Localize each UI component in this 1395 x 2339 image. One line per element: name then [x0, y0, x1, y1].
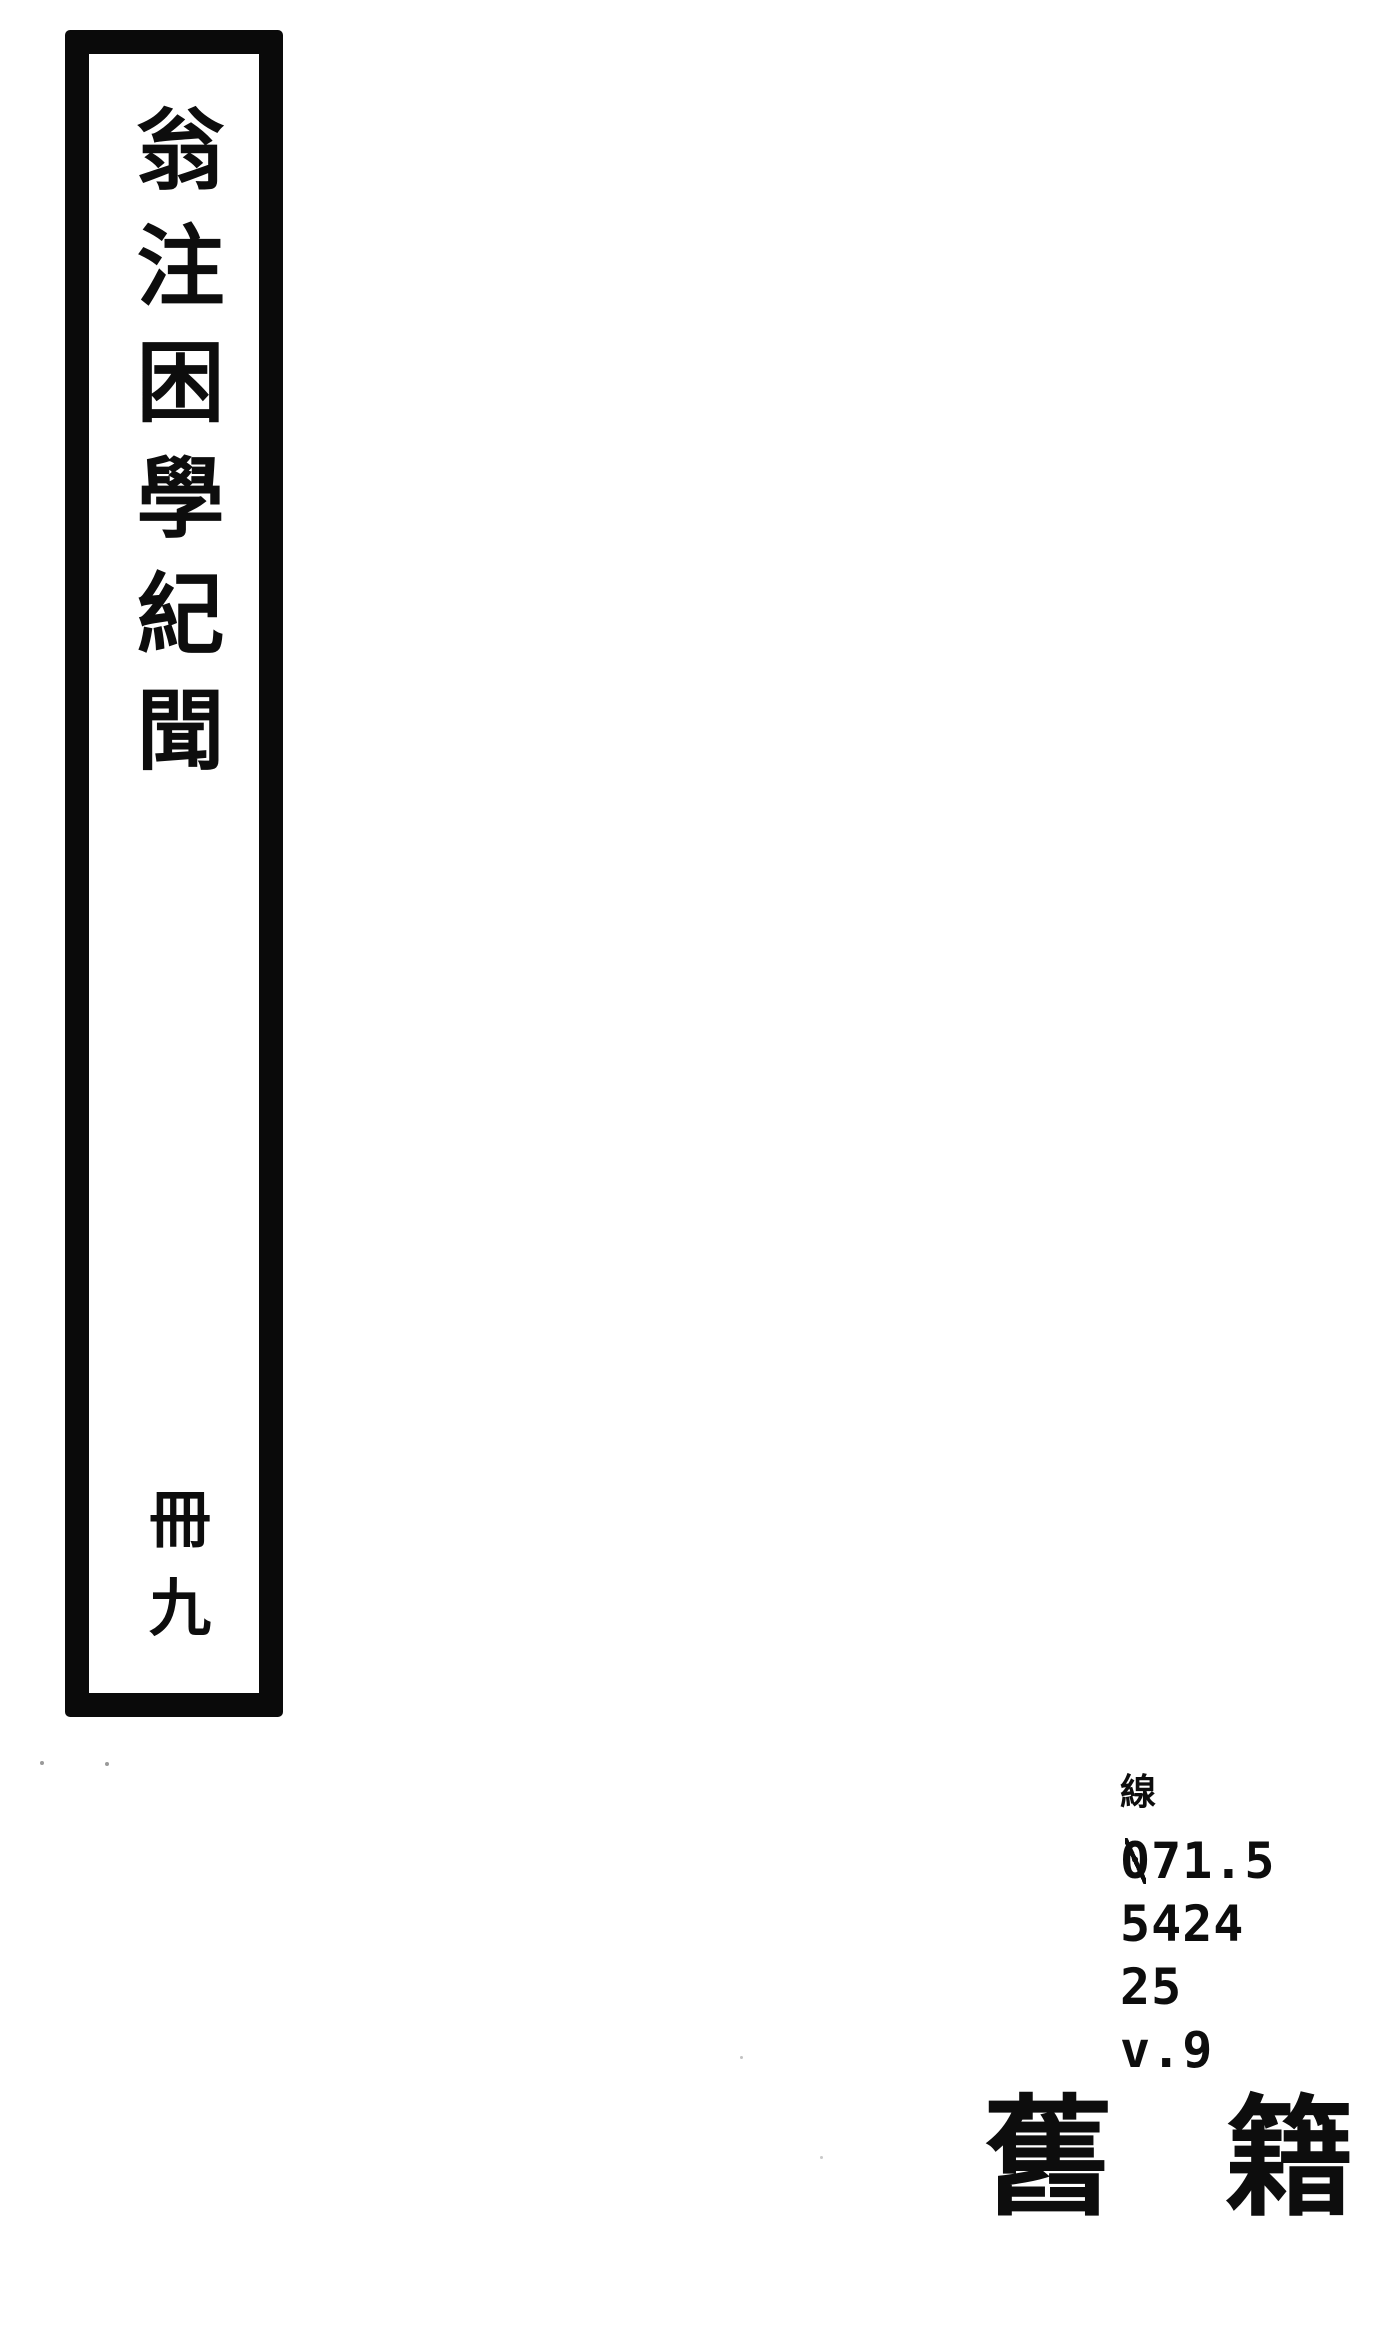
call-number-prefix: 線 [1120, 1770, 1276, 1814]
call-number-line-3: 25 [1120, 1956, 1276, 2019]
call-number-line-4: v.9 [1120, 2019, 1276, 2082]
scan-speck [105, 1762, 109, 1766]
call-number-line-1: 071.5 [1120, 1830, 1276, 1893]
volume-number-vertical: 冊九 [143, 1487, 205, 1663]
book-title-vertical: 翁注困學紀聞 [130, 104, 218, 800]
call-number-line-2: 5424 [1120, 1893, 1276, 1956]
scan-speck [740, 2056, 743, 2059]
title-slip-frame: 翁注困學紀聞 冊九 [65, 30, 283, 1717]
collection-stamp: 舊 籍 [983, 2086, 1355, 2229]
scanned-book-page: 翁注困學紀聞 冊九 線 071.5 5424 25 v.9 舊 籍 [0, 0, 1395, 2339]
collection-char-ji: 籍 [1225, 2086, 1355, 2229]
scan-speck [820, 2156, 823, 2159]
call-number-lines: 071.5 5424 25 v.9 [1120, 1830, 1276, 2082]
slashed-zero: 0 [1120, 1830, 1151, 1893]
collection-char-jiu: 舊 [983, 2086, 1113, 2229]
call-number-block: 線 071.5 5424 25 v.9 [1120, 1770, 1276, 2082]
scan-speck [40, 1761, 44, 1765]
